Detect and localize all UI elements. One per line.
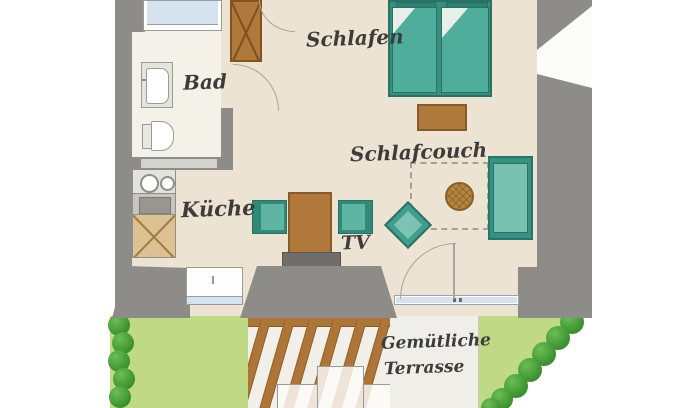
- label-terrace-line1: Gemütliche: [381, 330, 492, 354]
- label-sleep-couch: Schlafcouch: [350, 138, 488, 167]
- chair-seat: [342, 204, 365, 230]
- window-bottom-left: [186, 267, 243, 305]
- tv-lowboard: [282, 252, 341, 267]
- oven: [133, 193, 175, 215]
- label-tv: TV: [341, 232, 371, 255]
- terrace-deck: [248, 316, 390, 408]
- sleep-couch-cushion: [493, 163, 528, 233]
- diamond-stool-seat: [394, 211, 422, 239]
- bathroom-wall-right: [221, 108, 233, 157]
- bed-bench: [417, 104, 467, 131]
- basin: [146, 68, 169, 104]
- dining-table: [288, 192, 332, 254]
- round-pouf: [445, 182, 474, 211]
- label-bathroom: Bad: [183, 69, 228, 95]
- terrace-door-leaf: [453, 243, 455, 299]
- hedge-bush: [109, 386, 131, 408]
- label-bedroom: Schlafen: [306, 24, 404, 51]
- bathroom-wall-bottom: [115, 157, 233, 170]
- oven-door: [139, 197, 171, 214]
- terrace-text-area: [390, 304, 479, 408]
- label-terrace-line2: Terrasse: [384, 357, 465, 380]
- dining-chair-right: [338, 200, 373, 234]
- label-kitchen: Küche: [181, 195, 256, 223]
- stove-burner-small: [160, 176, 175, 191]
- washbasin: [141, 62, 173, 108]
- terrace-chair-outline-right: [363, 384, 390, 408]
- bathroom-window: [143, 0, 222, 31]
- window-glass: [147, 1, 218, 25]
- window-glass: [187, 296, 242, 304]
- chair-seat: [261, 204, 284, 230]
- kitchen-cabinet: [132, 214, 176, 258]
- window-mullion: [212, 276, 214, 284]
- timber-beam: [230, 0, 262, 62]
- terrace-chair-outline-left: [277, 384, 319, 408]
- stove-burner-large: [140, 174, 159, 193]
- terrace-table-outline: [317, 366, 364, 408]
- wall-inset: [141, 159, 217, 168]
- faucet: [142, 79, 146, 81]
- dining-chair-left: [252, 200, 287, 234]
- toilet-bowl: [151, 121, 174, 151]
- door-frame-mark: [459, 298, 462, 302]
- wall-bottom-middle: [240, 266, 397, 318]
- floor-plan: Schlafen Bad Küche Schlafcouch TV Gemütl…: [0, 0, 680, 408]
